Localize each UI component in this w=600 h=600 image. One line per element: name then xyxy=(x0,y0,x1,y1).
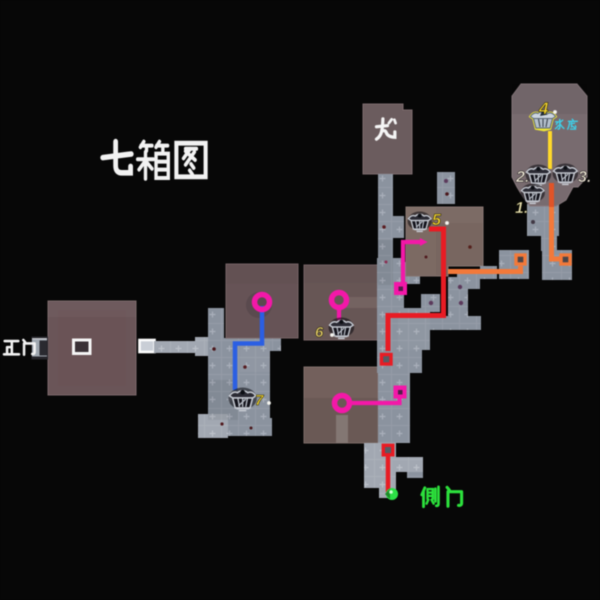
svg-text:7: 7 xyxy=(255,392,264,409)
svg-text:1.: 1. xyxy=(515,200,528,217)
svg-text:3.: 3. xyxy=(578,169,591,186)
svg-text:5: 5 xyxy=(432,212,442,229)
svg-text:6: 6 xyxy=(315,324,324,341)
svg-text:4: 4 xyxy=(538,99,549,118)
svg-text:2.: 2. xyxy=(515,169,529,186)
